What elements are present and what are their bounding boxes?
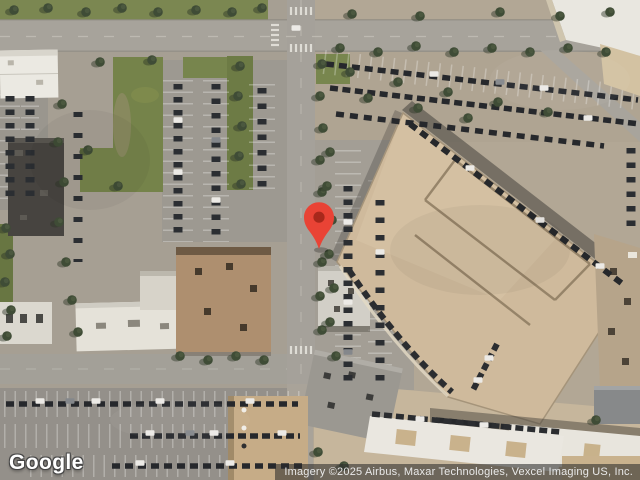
google-logo[interactable]: Google	[9, 451, 84, 475]
map-pin[interactable]	[300, 194, 338, 254]
attribution-bar: Imagery ©2025 Airbus, Maxar Technologies…	[275, 464, 640, 480]
pin-dot	[313, 212, 324, 223]
pin-body	[304, 202, 334, 249]
satellite-map[interactable]: Google Imagery ©2025 Airbus, Maxar Techn…	[0, 0, 640, 480]
pin-shadow	[314, 247, 328, 253]
attribution-text: Imagery ©2025 Airbus, Maxar Technologies…	[284, 466, 633, 478]
